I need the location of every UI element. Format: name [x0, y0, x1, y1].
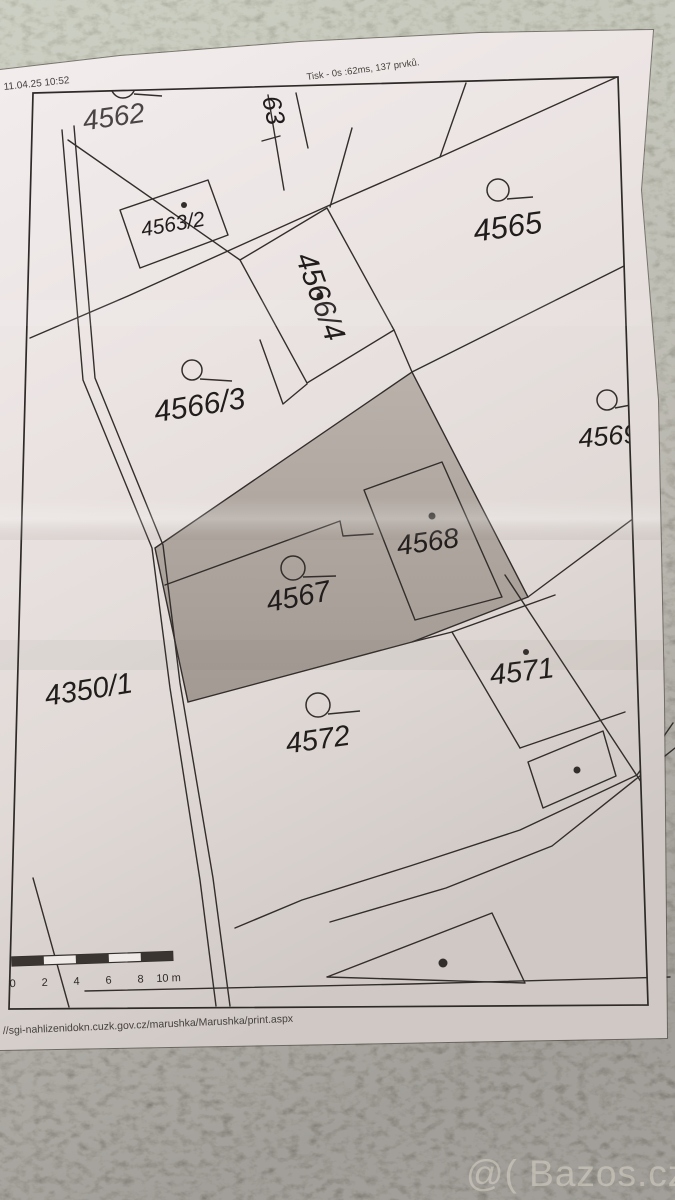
photo-canvas: 4562 63 4563/2 4565 4566/4 4566/3 4569 4…	[0, 0, 675, 1200]
scale-tick-2: 2	[41, 977, 48, 989]
scale-tick-4: 4	[73, 976, 80, 988]
point-symbol	[439, 959, 448, 968]
point-symbol	[181, 202, 187, 208]
point-symbol	[574, 767, 581, 774]
scale-tick-8: 8	[137, 973, 144, 985]
scale-tick-6: 6	[105, 975, 112, 987]
scale-tick-10m: 10 m	[156, 972, 181, 985]
watermark: @( Bazos.cz	[466, 1153, 675, 1194]
cadastral-map-photo: 4562 63 4563/2 4565 4566/4 4566/3 4569 4…	[0, 0, 675, 1200]
